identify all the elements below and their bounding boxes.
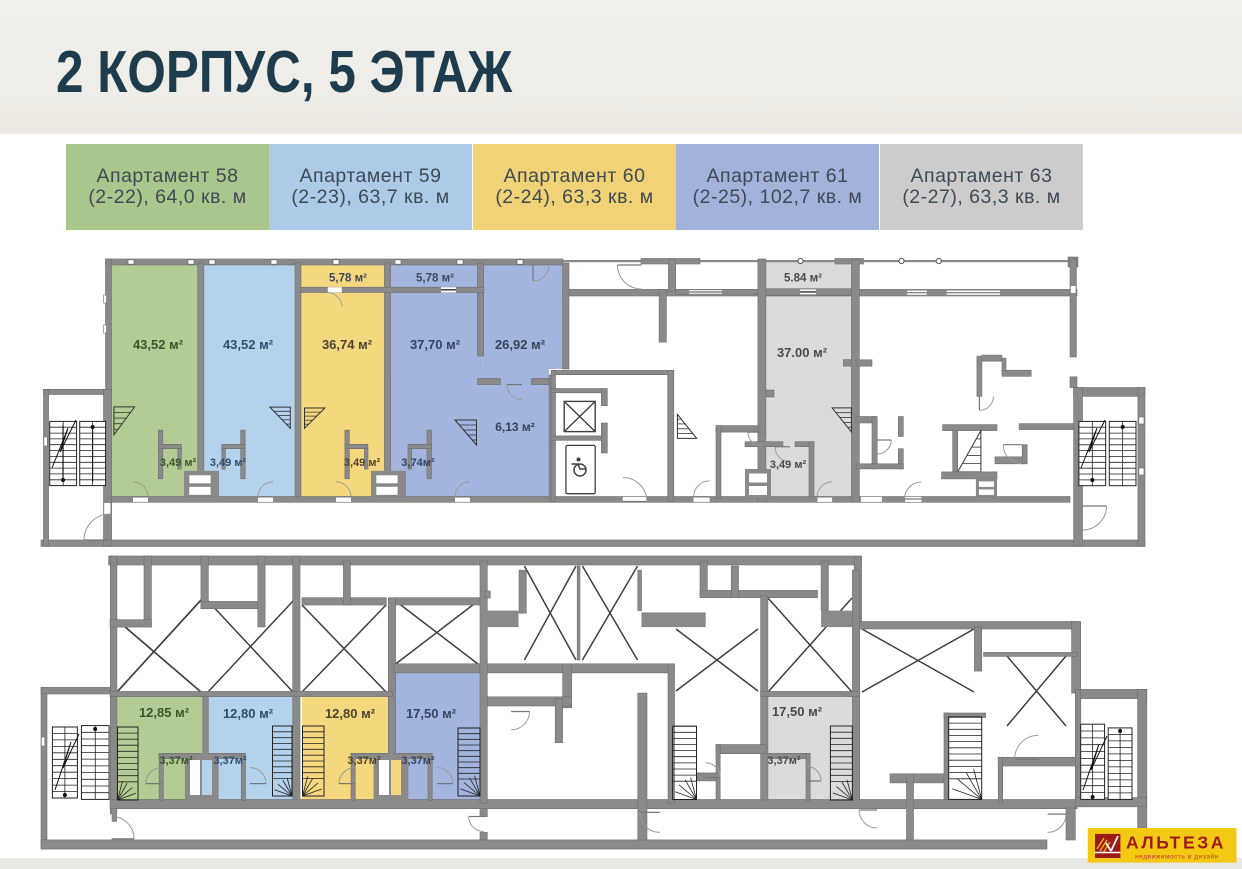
svg-text:12,85 м²: 12,85 м²	[139, 705, 190, 720]
svg-text:3,37м²: 3,37м²	[159, 755, 193, 767]
svg-text:3,49 м²: 3,49 м²	[344, 457, 381, 469]
svg-text:5,78 м²: 5,78 м²	[416, 273, 454, 285]
svg-text:6,13 м²: 6,13 м²	[495, 420, 535, 434]
svg-text:АЛЬТЕЗА: АЛЬТЕЗА	[1126, 833, 1226, 853]
svg-text:5.84 м²: 5.84 м²	[784, 273, 822, 285]
svg-text:37.00 м²: 37.00 м²	[777, 345, 828, 360]
svg-text:5,78 м²: 5,78 м²	[329, 273, 367, 285]
svg-text:3,74м²: 3,74м²	[401, 457, 435, 469]
svg-text:3,37м²: 3,37м²	[767, 755, 801, 767]
svg-text:12,80 м²: 12,80 м²	[223, 706, 274, 721]
svg-text:3,49 м²: 3,49 м²	[210, 457, 247, 469]
svg-text:3,37м²: 3,37м²	[347, 755, 381, 767]
svg-text:43,52 м²: 43,52 м²	[133, 337, 184, 352]
svg-text:3,49 м²: 3,49 м²	[160, 457, 197, 469]
svg-text:3,49 м²: 3,49 м²	[770, 459, 807, 471]
svg-text:12,80 м²: 12,80 м²	[325, 706, 376, 721]
svg-text:недвижимость и дизайн: недвижимость и дизайн	[1135, 853, 1219, 861]
svg-text:37,70 м²: 37,70 м²	[410, 337, 461, 352]
svg-text:3,37м²: 3,37м²	[213, 755, 247, 767]
svg-text:36,74 м²: 36,74 м²	[322, 337, 373, 352]
svg-text:43,52 м²: 43,52 м²	[223, 337, 274, 352]
svg-text:3,37м²: 3,37м²	[401, 755, 435, 767]
svg-text:26,92 м²: 26,92 м²	[495, 337, 546, 352]
svg-text:17,50 м²: 17,50 м²	[406, 706, 457, 721]
svg-text:17,50 м²: 17,50 м²	[772, 704, 823, 719]
